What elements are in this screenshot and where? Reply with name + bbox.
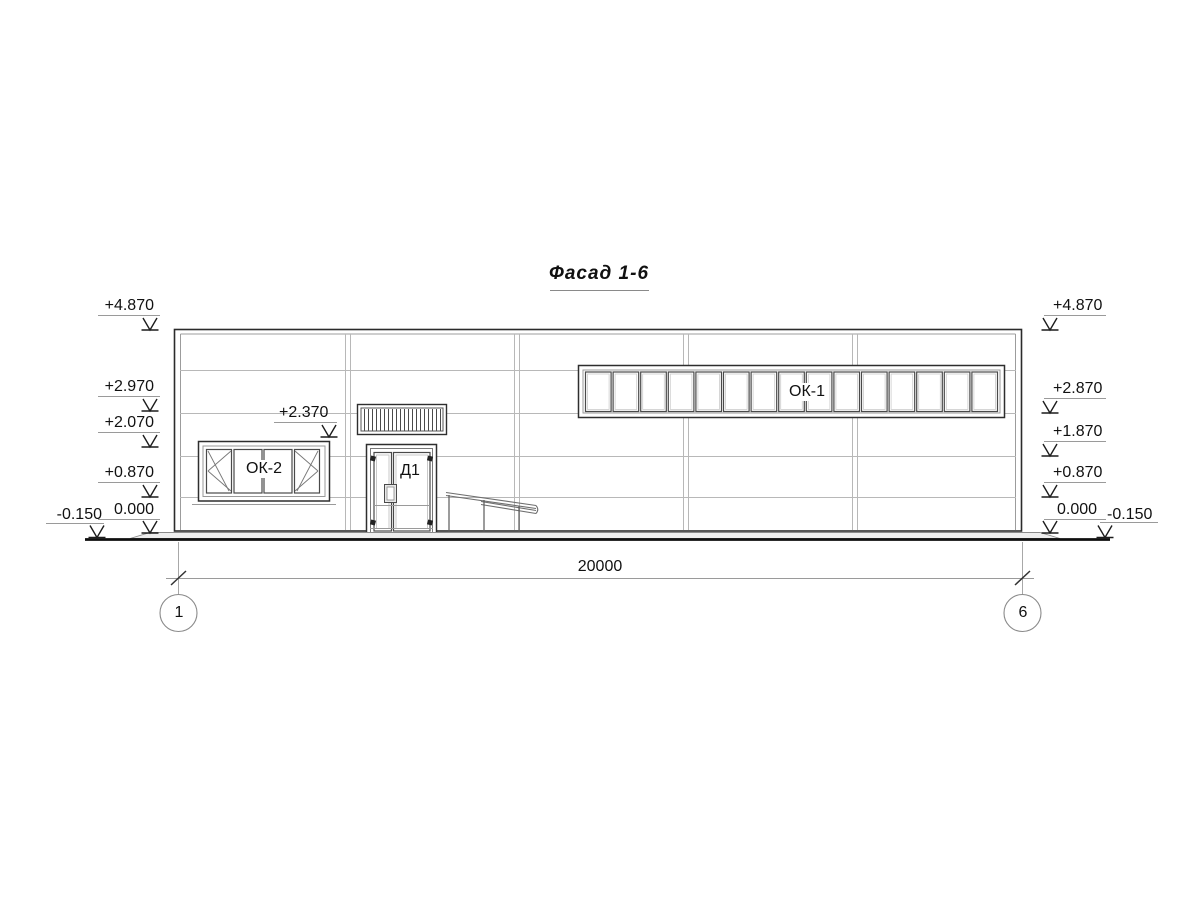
- elevation-label-right: +1.870: [1053, 423, 1102, 441]
- grid-axis-1-label: 1: [175, 604, 184, 622]
- elevation-label-door-head: +2.370: [279, 404, 328, 422]
- elevation-label-left: +0.870: [62, 464, 154, 482]
- facade-elevation-drawing: Фасад 1-6 +4.870 +2.970 +2.070 +0.870 0.…: [0, 0, 1200, 900]
- overall-dimension-label: 20000: [578, 558, 623, 576]
- door-handle: [385, 485, 397, 503]
- elevation-label-right: -0.150: [1107, 506, 1152, 524]
- elevation-label-left: +2.070: [62, 414, 154, 432]
- door-label: Д1: [398, 462, 422, 480]
- elevation-label-left: +4.870: [62, 297, 154, 315]
- drawing-title: Фасад 1-6: [549, 264, 649, 285]
- elevation-label-right: +4.870: [1053, 297, 1102, 315]
- grid-axis-6-label: 6: [1019, 604, 1028, 622]
- elevation-label-right: +2.870: [1053, 380, 1102, 398]
- vent-grille: [358, 405, 447, 435]
- left-window-label: ОК-2: [244, 460, 284, 478]
- elevation-label-right: +0.870: [1053, 464, 1102, 482]
- elevation-label-left: +2.970: [62, 378, 154, 396]
- dimension-line-group: [160, 542, 1041, 632]
- strip-window-label: ОК-1: [787, 383, 827, 401]
- plinth-apron: [130, 533, 1060, 539]
- entrance-door-d1: [367, 445, 437, 534]
- elevation-label-right: 0.000: [1057, 501, 1097, 519]
- elevation-label-left: -0.150: [10, 506, 102, 524]
- drawing-linework: [0, 0, 1200, 900]
